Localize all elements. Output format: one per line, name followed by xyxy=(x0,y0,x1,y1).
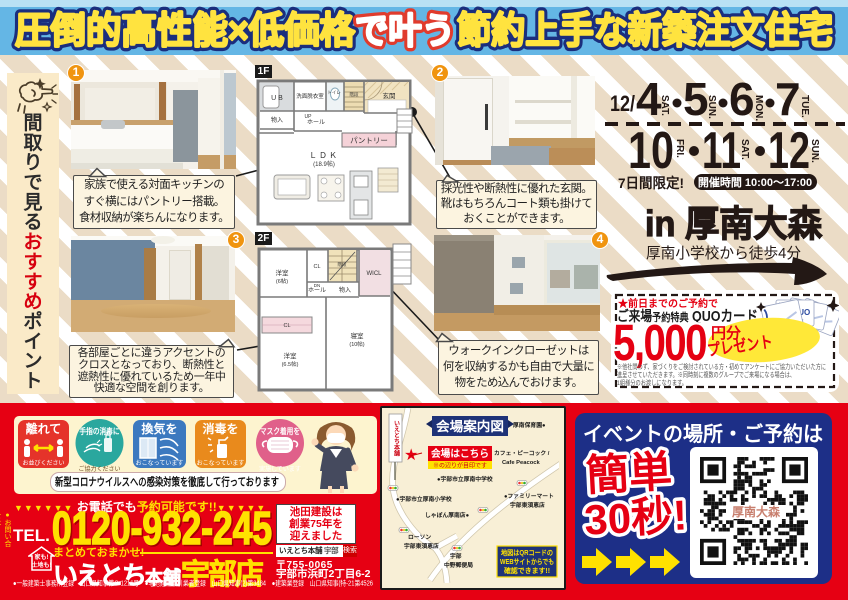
svg-text:宇部東須恵店: 宇部東須恵店 xyxy=(404,542,439,550)
svg-text:土地も!: 土地も! xyxy=(32,561,52,569)
svg-text:手指の消毒に: 手指の消毒に xyxy=(80,426,120,436)
svg-text:家も!: 家も! xyxy=(35,553,49,561)
svg-text:●宇部市立厚南中学校: ●宇部市立厚南中学校 xyxy=(437,475,493,483)
svg-text:●ファミリーマート: ●ファミリーマート xyxy=(504,493,554,500)
svg-text:厚南保育園●: 厚南保育園● xyxy=(513,421,546,429)
svg-text:宇部: 宇部 xyxy=(450,552,462,560)
svg-text:マスク着用を: マスク着用を xyxy=(260,426,300,436)
svg-text:●一般建築士事務所登録 山口県知事第G-1216号 ●宅地建: ●一般建築士事務所登録 山口県知事第G-1216号 ●宅地建物取引業者登録 山口… xyxy=(13,579,373,588)
svg-text:離れて: 離れて xyxy=(26,421,62,436)
svg-text:お並びください: お並びください xyxy=(22,459,64,467)
svg-text:宇部東須恵店: 宇部東須恵店 xyxy=(510,501,545,509)
svg-text:おこなっています: おこなっています xyxy=(197,460,245,467)
svg-text:新型コロナウイルスへの感染対策を徹底して行っております: 新型コロナウイルスへの感染対策を徹底して行っております xyxy=(55,475,279,489)
svg-text:カフェ・ピーコック /: カフェ・ピーコック / xyxy=(494,449,550,457)
svg-text:しゃぼん厚南店●: しゃぼん厚南店● xyxy=(425,511,469,519)
svg-text:TEL.: TEL. xyxy=(13,526,50,545)
svg-text:イベントの場所・ご予約は: イベントの場所・ご予約は xyxy=(583,422,823,446)
svg-text:おこなっています: おこなっています xyxy=(136,460,184,467)
svg-text:地図はQRコードの: 地図はQRコードの xyxy=(501,548,553,557)
svg-text:30秒!: 30秒! xyxy=(583,491,688,543)
svg-text:ローソン: ローソン xyxy=(408,534,431,541)
svg-text:Cafe Peacock: Cafe Peacock xyxy=(502,460,540,466)
svg-text:WEBサイトからでも: WEBサイトからでも xyxy=(500,558,554,566)
svg-text:中野郵便局: 中野郵便局 xyxy=(444,561,473,569)
svg-text:確認できます!!: 確認できます!! xyxy=(504,566,550,575)
svg-text:0120-932-245: 0120-932-245 xyxy=(52,503,272,548)
svg-text:※の辺りが目印です: ※の辺りが目印です xyxy=(433,462,487,470)
svg-text:換気を: 換気を xyxy=(141,421,177,436)
svg-text:会場案内図: 会場案内図 xyxy=(436,419,504,434)
svg-text:会場はこちら: 会場はこちら xyxy=(431,447,489,460)
svg-text:●宇部市立厚南小学校: ●宇部市立厚南小学校 xyxy=(396,495,452,503)
svg-text:消毒を: 消毒を xyxy=(202,421,238,436)
